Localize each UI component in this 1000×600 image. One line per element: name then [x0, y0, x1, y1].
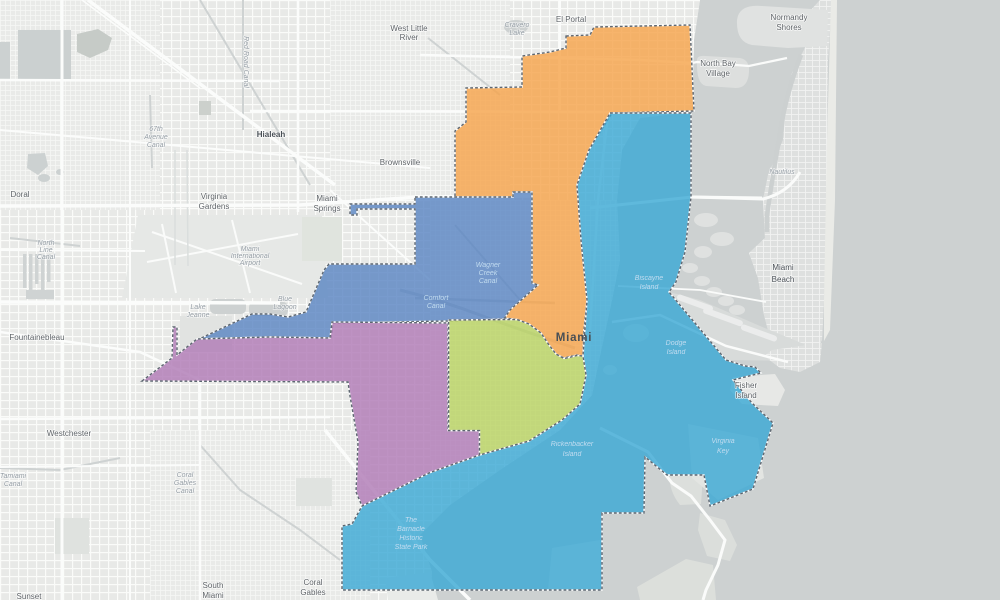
- svg-text:Springs: Springs: [313, 204, 340, 213]
- svg-text:South: South: [203, 581, 224, 590]
- svg-text:Cravero: Cravero: [505, 22, 530, 29]
- svg-text:Miami: Miami: [316, 194, 338, 203]
- svg-text:Fountainebleau: Fountainebleau: [9, 333, 64, 342]
- svg-text:Island: Island: [735, 391, 756, 400]
- svg-text:Island: Island: [667, 349, 687, 356]
- svg-text:Canal: Canal: [4, 481, 23, 488]
- svg-text:Canal: Canal: [427, 303, 446, 310]
- svg-text:State Park: State Park: [395, 544, 428, 551]
- svg-text:Normandy: Normandy: [771, 13, 808, 22]
- svg-text:Doral: Doral: [10, 190, 29, 199]
- svg-text:Biscayne: Biscayne: [635, 275, 664, 282]
- svg-text:Beach: Beach: [772, 275, 795, 284]
- svg-text:Miami: Miami: [202, 591, 224, 600]
- svg-text:Virginia: Virginia: [201, 192, 228, 201]
- svg-text:Miami: Miami: [556, 332, 593, 344]
- svg-text:International: International: [231, 253, 270, 260]
- svg-text:Virginia: Virginia: [711, 438, 734, 445]
- svg-text:El Portal: El Portal: [556, 15, 586, 24]
- svg-text:67th: 67th: [149, 126, 163, 133]
- svg-text:Canal: Canal: [479, 278, 498, 285]
- svg-text:Wagner: Wagner: [476, 262, 501, 269]
- svg-text:Canal: Canal: [176, 488, 195, 495]
- svg-text:North: North: [37, 240, 54, 247]
- svg-text:Avenue: Avenue: [143, 134, 168, 141]
- svg-text:Comfort: Comfort: [424, 295, 450, 302]
- svg-text:Red Road Canal: Red Road Canal: [242, 36, 249, 88]
- svg-text:Barnacle: Barnacle: [397, 526, 425, 533]
- svg-text:Gables: Gables: [300, 588, 325, 597]
- svg-text:Coral: Coral: [177, 472, 194, 479]
- svg-text:Line: Line: [39, 247, 52, 254]
- svg-text:Gardens: Gardens: [199, 202, 230, 211]
- svg-text:Canal: Canal: [37, 254, 56, 261]
- svg-text:Hialeah: Hialeah: [257, 130, 286, 139]
- svg-text:Sunset: Sunset: [17, 592, 43, 600]
- svg-text:Miami: Miami: [772, 263, 794, 272]
- svg-text:North Bay: North Bay: [700, 59, 736, 68]
- svg-text:Village: Village: [706, 69, 730, 78]
- svg-text:River: River: [400, 33, 419, 42]
- svg-text:Canal: Canal: [147, 142, 166, 149]
- svg-text:Island: Island: [563, 451, 583, 458]
- svg-text:Lake: Lake: [509, 30, 524, 37]
- svg-text:Shores: Shores: [776, 23, 801, 32]
- svg-text:Miami: Miami: [241, 246, 260, 253]
- svg-text:Westchester: Westchester: [47, 429, 92, 438]
- svg-text:Tamiami: Tamiami: [0, 473, 27, 480]
- svg-text:The: The: [405, 517, 417, 524]
- svg-text:Island: Island: [640, 284, 660, 291]
- svg-text:Jeanne: Jeanne: [186, 312, 210, 319]
- svg-text:Nautilus: Nautilus: [769, 169, 795, 176]
- svg-text:Lagoon: Lagoon: [273, 304, 296, 311]
- svg-text:Rickenbacker: Rickenbacker: [551, 441, 594, 448]
- svg-text:Airport: Airport: [239, 260, 262, 267]
- svg-text:Coral: Coral: [303, 578, 322, 587]
- svg-text:Fisher: Fisher: [735, 381, 758, 390]
- svg-text:Gables: Gables: [174, 480, 197, 487]
- svg-text:Historic: Historic: [399, 535, 423, 542]
- svg-text:Dodge: Dodge: [666, 340, 687, 347]
- svg-text:Blue: Blue: [278, 296, 292, 303]
- svg-text:Brownsville: Brownsville: [380, 158, 421, 167]
- svg-text:Creek: Creek: [479, 270, 498, 277]
- svg-text:West Little: West Little: [390, 24, 428, 33]
- svg-text:Key: Key: [717, 448, 730, 455]
- svg-text:Lake: Lake: [190, 304, 205, 311]
